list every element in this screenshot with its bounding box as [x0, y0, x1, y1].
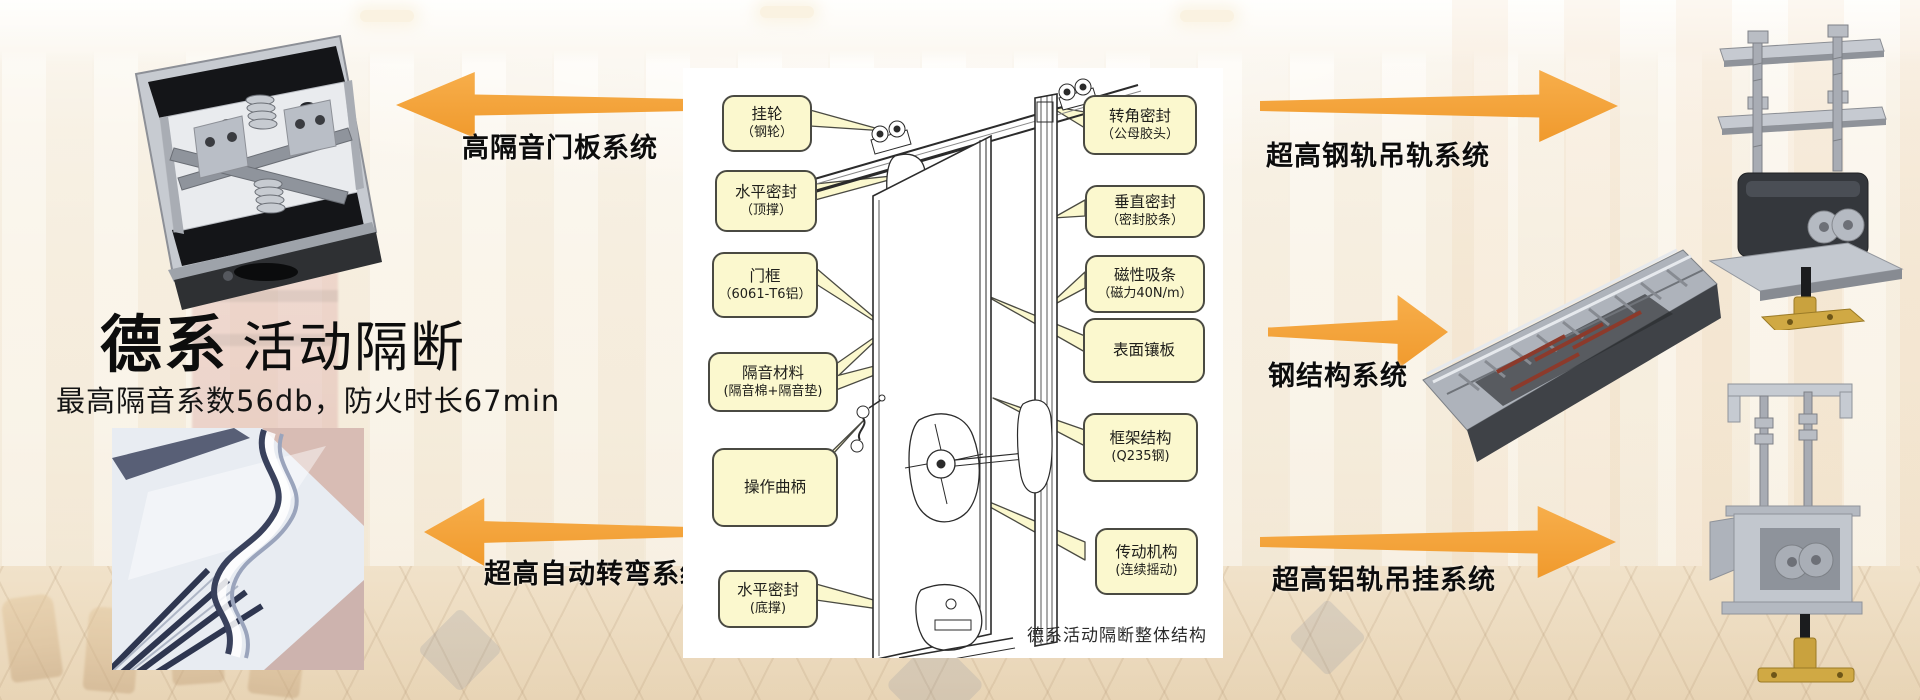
door-panel-face: [873, 136, 991, 658]
label-steel-rail-system: 超高钢轨吊轨系统: [1266, 134, 1490, 173]
door-edge-profile: [1027, 94, 1057, 646]
curved-track-illustration: [112, 428, 364, 670]
slide: 德系 活动隔断 最高隔音系数56db，防火时长67min: [0, 0, 1920, 700]
steel-frame-illustration: [1415, 232, 1725, 464]
callout-hanger-wheel: 挂轮 （钢轮）: [722, 95, 812, 152]
diagram-caption: 德系活动隔断整体结构: [1027, 621, 1207, 646]
photo-curved-track: [112, 428, 364, 670]
callout-acoustic-material: 隔音材料 (隔音棉+隔音垫): [708, 352, 838, 412]
photo-steel-rail-hanger: [1698, 5, 1916, 330]
aluminum-rail-illustration: [1700, 372, 1885, 690]
callout-magnetic-strip: 磁性吸条 （磁力40N/m）: [1085, 255, 1205, 313]
label-aluminum-rail-system: 超高铝轨吊挂系统: [1272, 558, 1496, 597]
steel-rail-hanger-illustration: [1698, 5, 1916, 330]
callout-transmission: 传动机构 (连续摇动): [1095, 528, 1198, 595]
photo-door-panel-mechanism: [108, 8, 408, 313]
photo-aluminum-rail-hanger: [1700, 372, 1885, 690]
callout-vertical-seal: 垂直密封 （密封胶条）: [1085, 185, 1205, 238]
callout-corner-seal: 转角密封 （公母胶头）: [1083, 95, 1197, 155]
callout-horizontal-seal-bottom: 水平密封 (底撑): [718, 570, 818, 628]
label-auto-turning-system: 超高自动转弯系统: [484, 552, 708, 591]
callout-surface-panel: 表面镶板: [1083, 318, 1205, 383]
door-panel-mechanism-illustration: [108, 8, 408, 313]
callout-operating-crank: 操作曲柄: [712, 448, 838, 527]
title-secondary: 活动隔断: [242, 303, 466, 382]
label-steel-structure-system: 钢结构系统: [1268, 354, 1408, 393]
callout-horizontal-seal-top: 水平密封 （顶撑）: [715, 170, 817, 232]
callout-door-frame: 门框 （6061-T6铝）: [712, 252, 818, 318]
structure-diagram-panel: 挂轮 （钢轮） 水平密封 （顶撑） 门框 （6061-T6铝） 隔音材料 (隔音…: [683, 68, 1223, 658]
label-door-panel-system: 高隔音门板系统: [462, 126, 658, 165]
title-subtitle: 最高隔音系数56db，防火时长67min: [56, 378, 560, 420]
photo-steel-frame-structure: [1415, 232, 1725, 464]
callout-frame-structure: 框架结构 (Q235钢): [1083, 413, 1198, 482]
